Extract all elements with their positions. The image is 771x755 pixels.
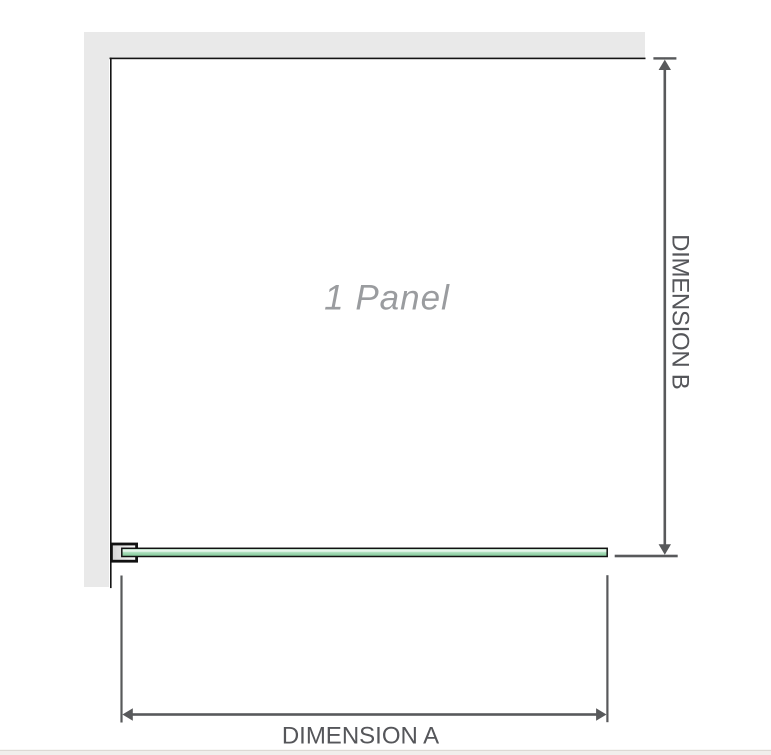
svg-text:1 Panel: 1 Panel [324, 279, 450, 318]
svg-text:DIMENSION A: DIMENSION A [282, 723, 439, 750]
svg-text:DIMENSION B: DIMENSION B [666, 234, 693, 389]
